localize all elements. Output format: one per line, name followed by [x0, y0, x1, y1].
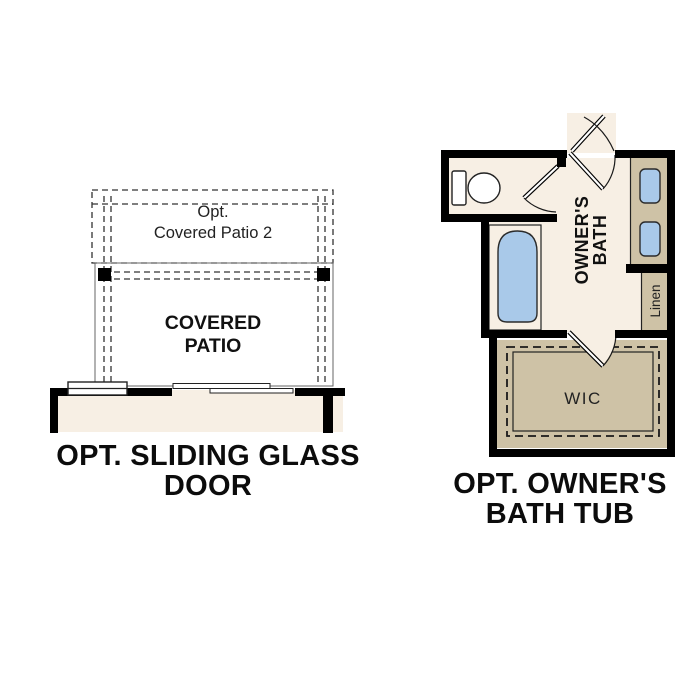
window: [68, 382, 127, 395]
plan-cutout-mask: [430, 222, 481, 338]
entry-hall-notch: [567, 113, 616, 153]
owners-bath-tub-caption: OPT. OWNER'S BATH TUB: [432, 469, 687, 529]
sink-top: [640, 169, 660, 203]
covered-patio-label-line2: PATIO: [185, 335, 242, 357]
sliding-glass-door-plan: Opt. Covered Patio 2 COVERED PATIO: [50, 190, 345, 433]
vanity-counter: [630, 158, 668, 264]
linen-label: Linen: [648, 284, 663, 317]
floorplan-options-page: { "colors": { "wall_black": "#000000", "…: [0, 0, 687, 687]
patio-post-right: [317, 268, 330, 281]
sink-bottom: [640, 222, 660, 256]
patio2-label-line2: Covered Patio 2: [154, 224, 272, 242]
covered-patio-label-line1: COVERED: [165, 312, 261, 334]
toilet: [452, 171, 500, 205]
floorplan-canvas: Opt. Covered Patio 2 COVERED PATIO: [0, 0, 687, 687]
patio-post-left: [98, 268, 111, 281]
bath-label-line2: BATH: [590, 215, 610, 266]
sliding-glass-door-caption: OPT. SLIDING GLASS DOOR: [8, 441, 408, 501]
wic-label: WIC: [564, 389, 602, 408]
owners-bath-plan: OWNER'S BATH Linen WIC: [430, 113, 675, 457]
bathtub: [498, 231, 537, 322]
owners-bath-tub-caption-line2: BATH TUB: [432, 499, 687, 529]
owners-bath-tub-caption-line1: OPT. OWNER'S: [432, 469, 687, 499]
bath-label-line1: OWNER'S: [572, 196, 592, 285]
patio2-label-line1: Opt.: [197, 203, 228, 221]
door-opening-floor: [172, 390, 295, 432]
